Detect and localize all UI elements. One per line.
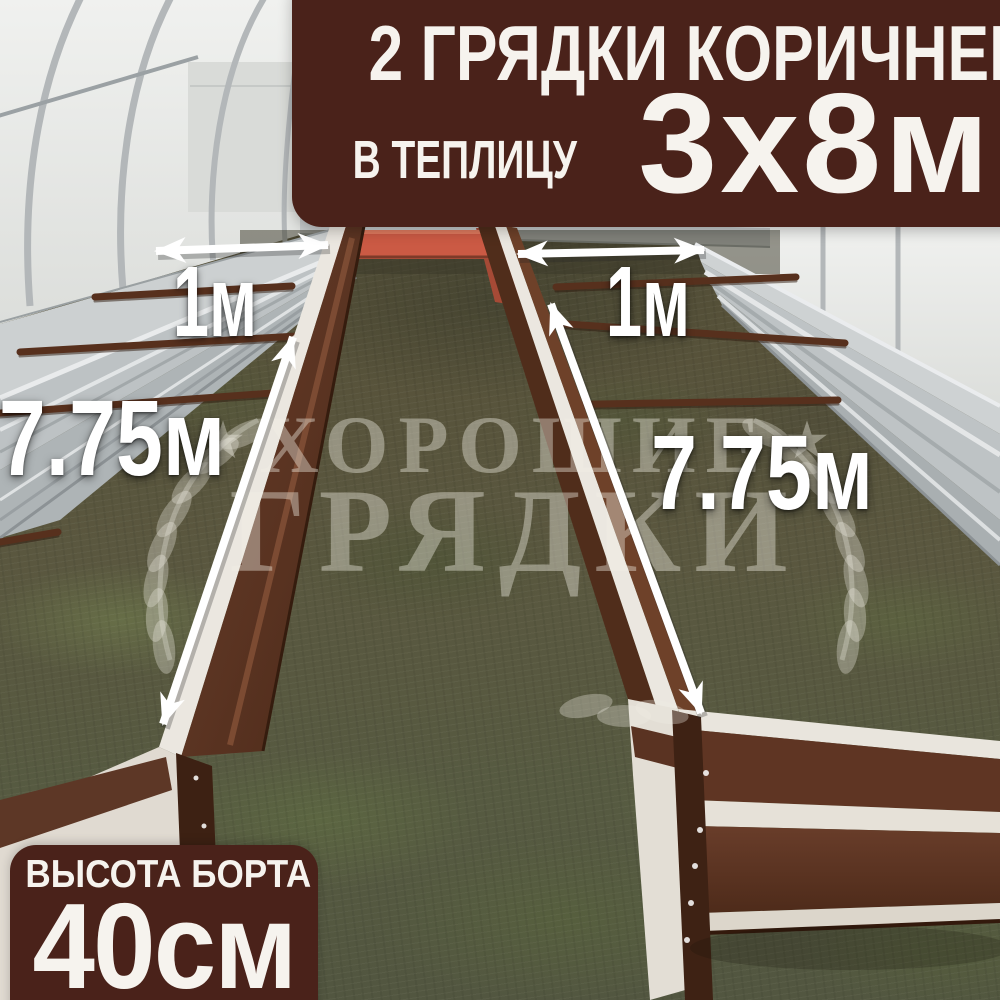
title-line2: В ТЕПЛИЦУ 3х8м — [298, 87, 1000, 201]
width-label-right: 1м — [583, 252, 713, 352]
height-value-text: 40см — [22, 892, 305, 1000]
height-banner: ВЫСОТА БОРТА 40см — [10, 845, 318, 1000]
title-line2-prefix: В ТЕПЛИЦУ — [352, 133, 576, 187]
product-photo: ★ХОРОШИЕ★ ГРЯДКИ 1м 1м 7.75м 7.75м 2 ГРЯ… — [0, 0, 1000, 1000]
greenhouse-size-text: 3х8м — [638, 87, 992, 201]
length-label-left: 7.75м — [0, 384, 268, 492]
length-label-right: 7.75м — [606, 420, 918, 526]
title-banner: 2 ГРЯДКИ КОРИЧНЕВЫЕ В ТЕПЛИЦУ 3х8м — [292, 0, 1000, 227]
width-label-left: 1м — [150, 252, 280, 352]
